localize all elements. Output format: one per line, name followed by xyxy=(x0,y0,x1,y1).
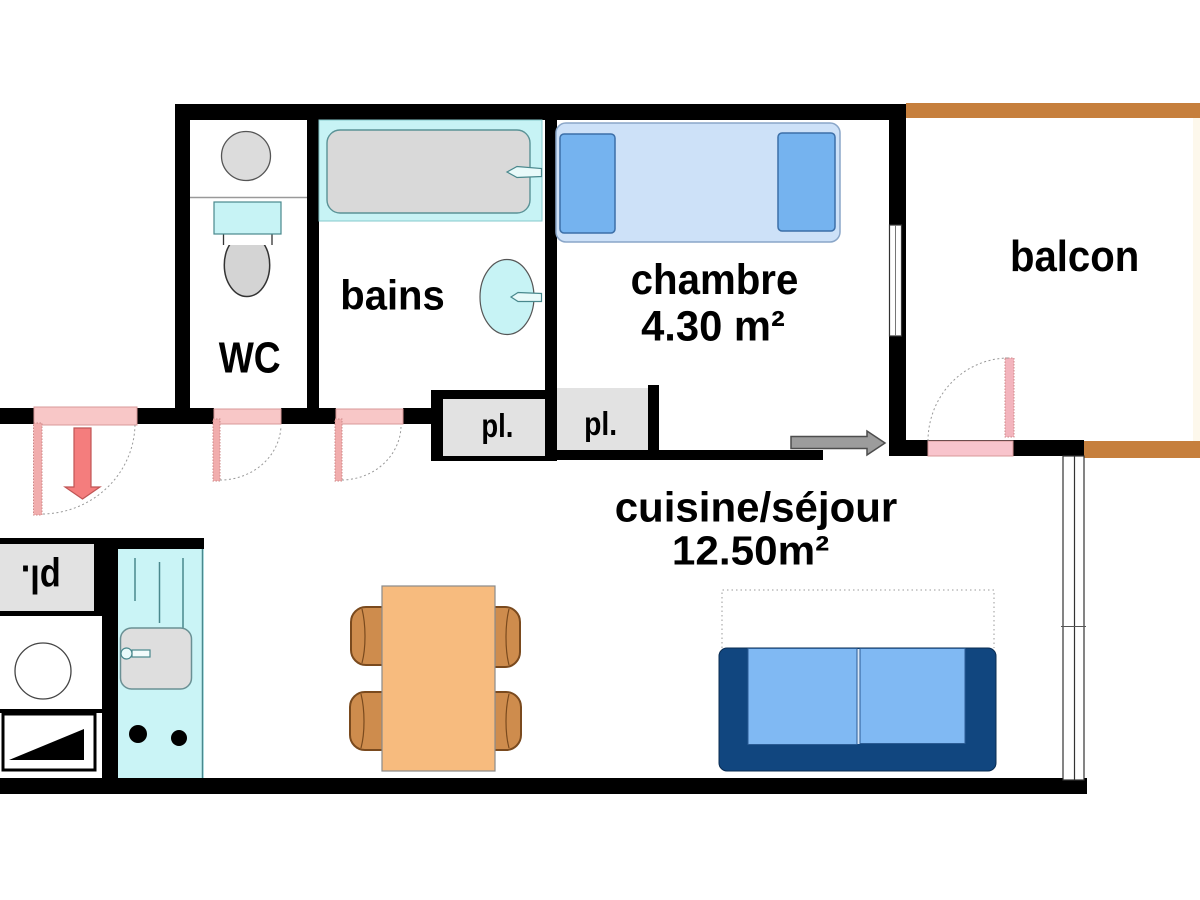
svg-text:pl.: pl. xyxy=(481,407,513,444)
svg-text:pl.: pl. xyxy=(584,405,617,442)
svg-text:chambre: chambre xyxy=(631,256,799,304)
svg-text:bains: bains xyxy=(340,272,445,319)
svg-text:pl.: pl. xyxy=(21,557,61,601)
svg-text:balcon: balcon xyxy=(1010,232,1139,281)
svg-text:cuisine/séjour: cuisine/séjour xyxy=(615,484,898,531)
svg-text:4.30 m²: 4.30 m² xyxy=(641,303,785,351)
svg-text:WC: WC xyxy=(219,335,281,383)
svg-text:12.50m²: 12.50m² xyxy=(672,528,829,574)
